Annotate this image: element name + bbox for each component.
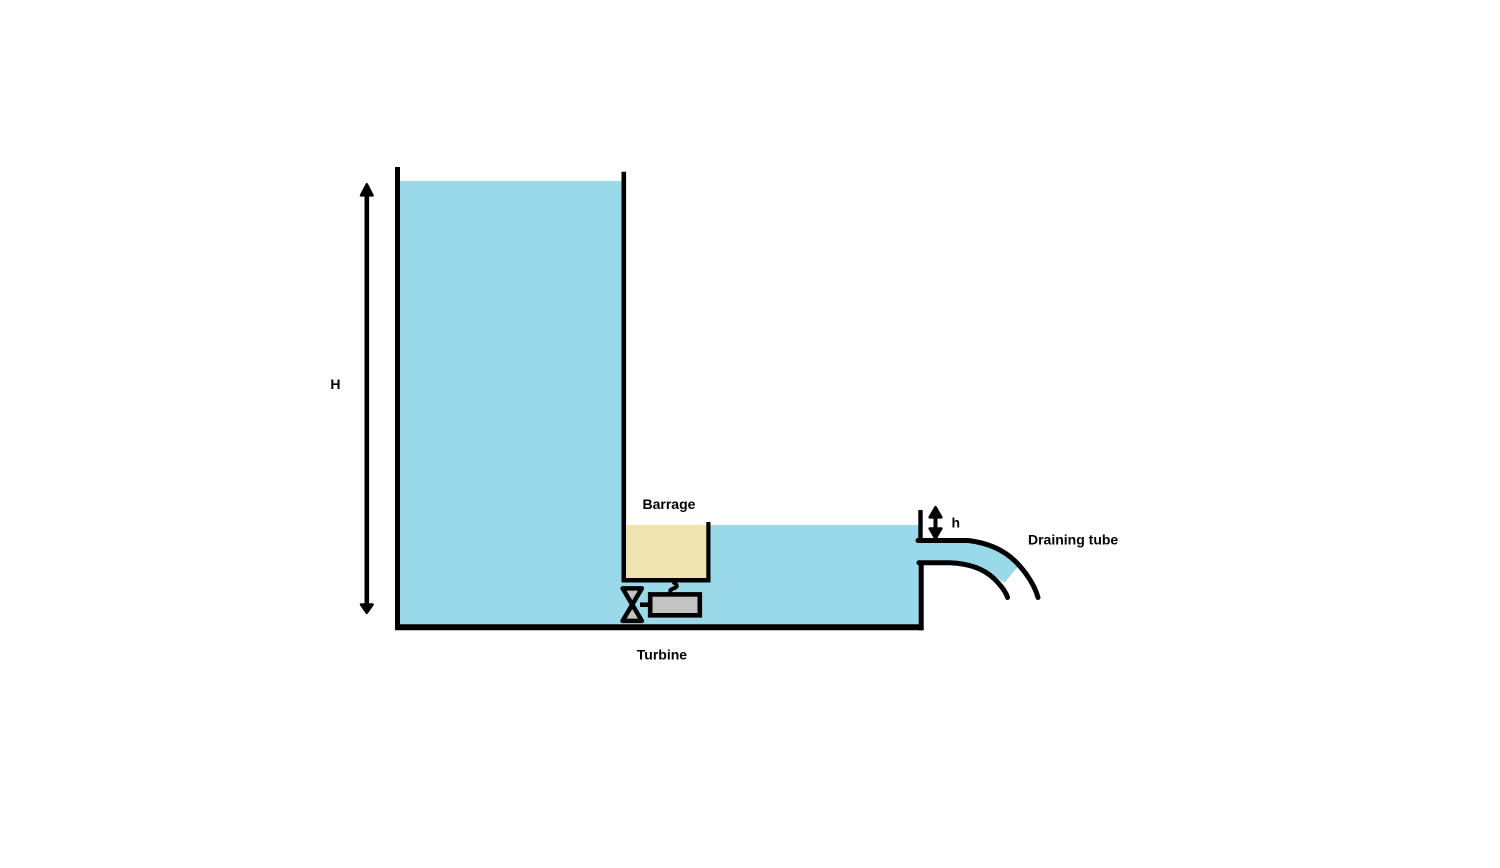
svg-text:Turbine: Turbine: [637, 647, 688, 663]
svg-text:Draining tube: Draining tube: [1028, 532, 1118, 548]
svg-text:H: H: [330, 376, 340, 392]
svg-text:Barrage: Barrage: [643, 496, 696, 512]
svg-text:h: h: [952, 515, 961, 531]
